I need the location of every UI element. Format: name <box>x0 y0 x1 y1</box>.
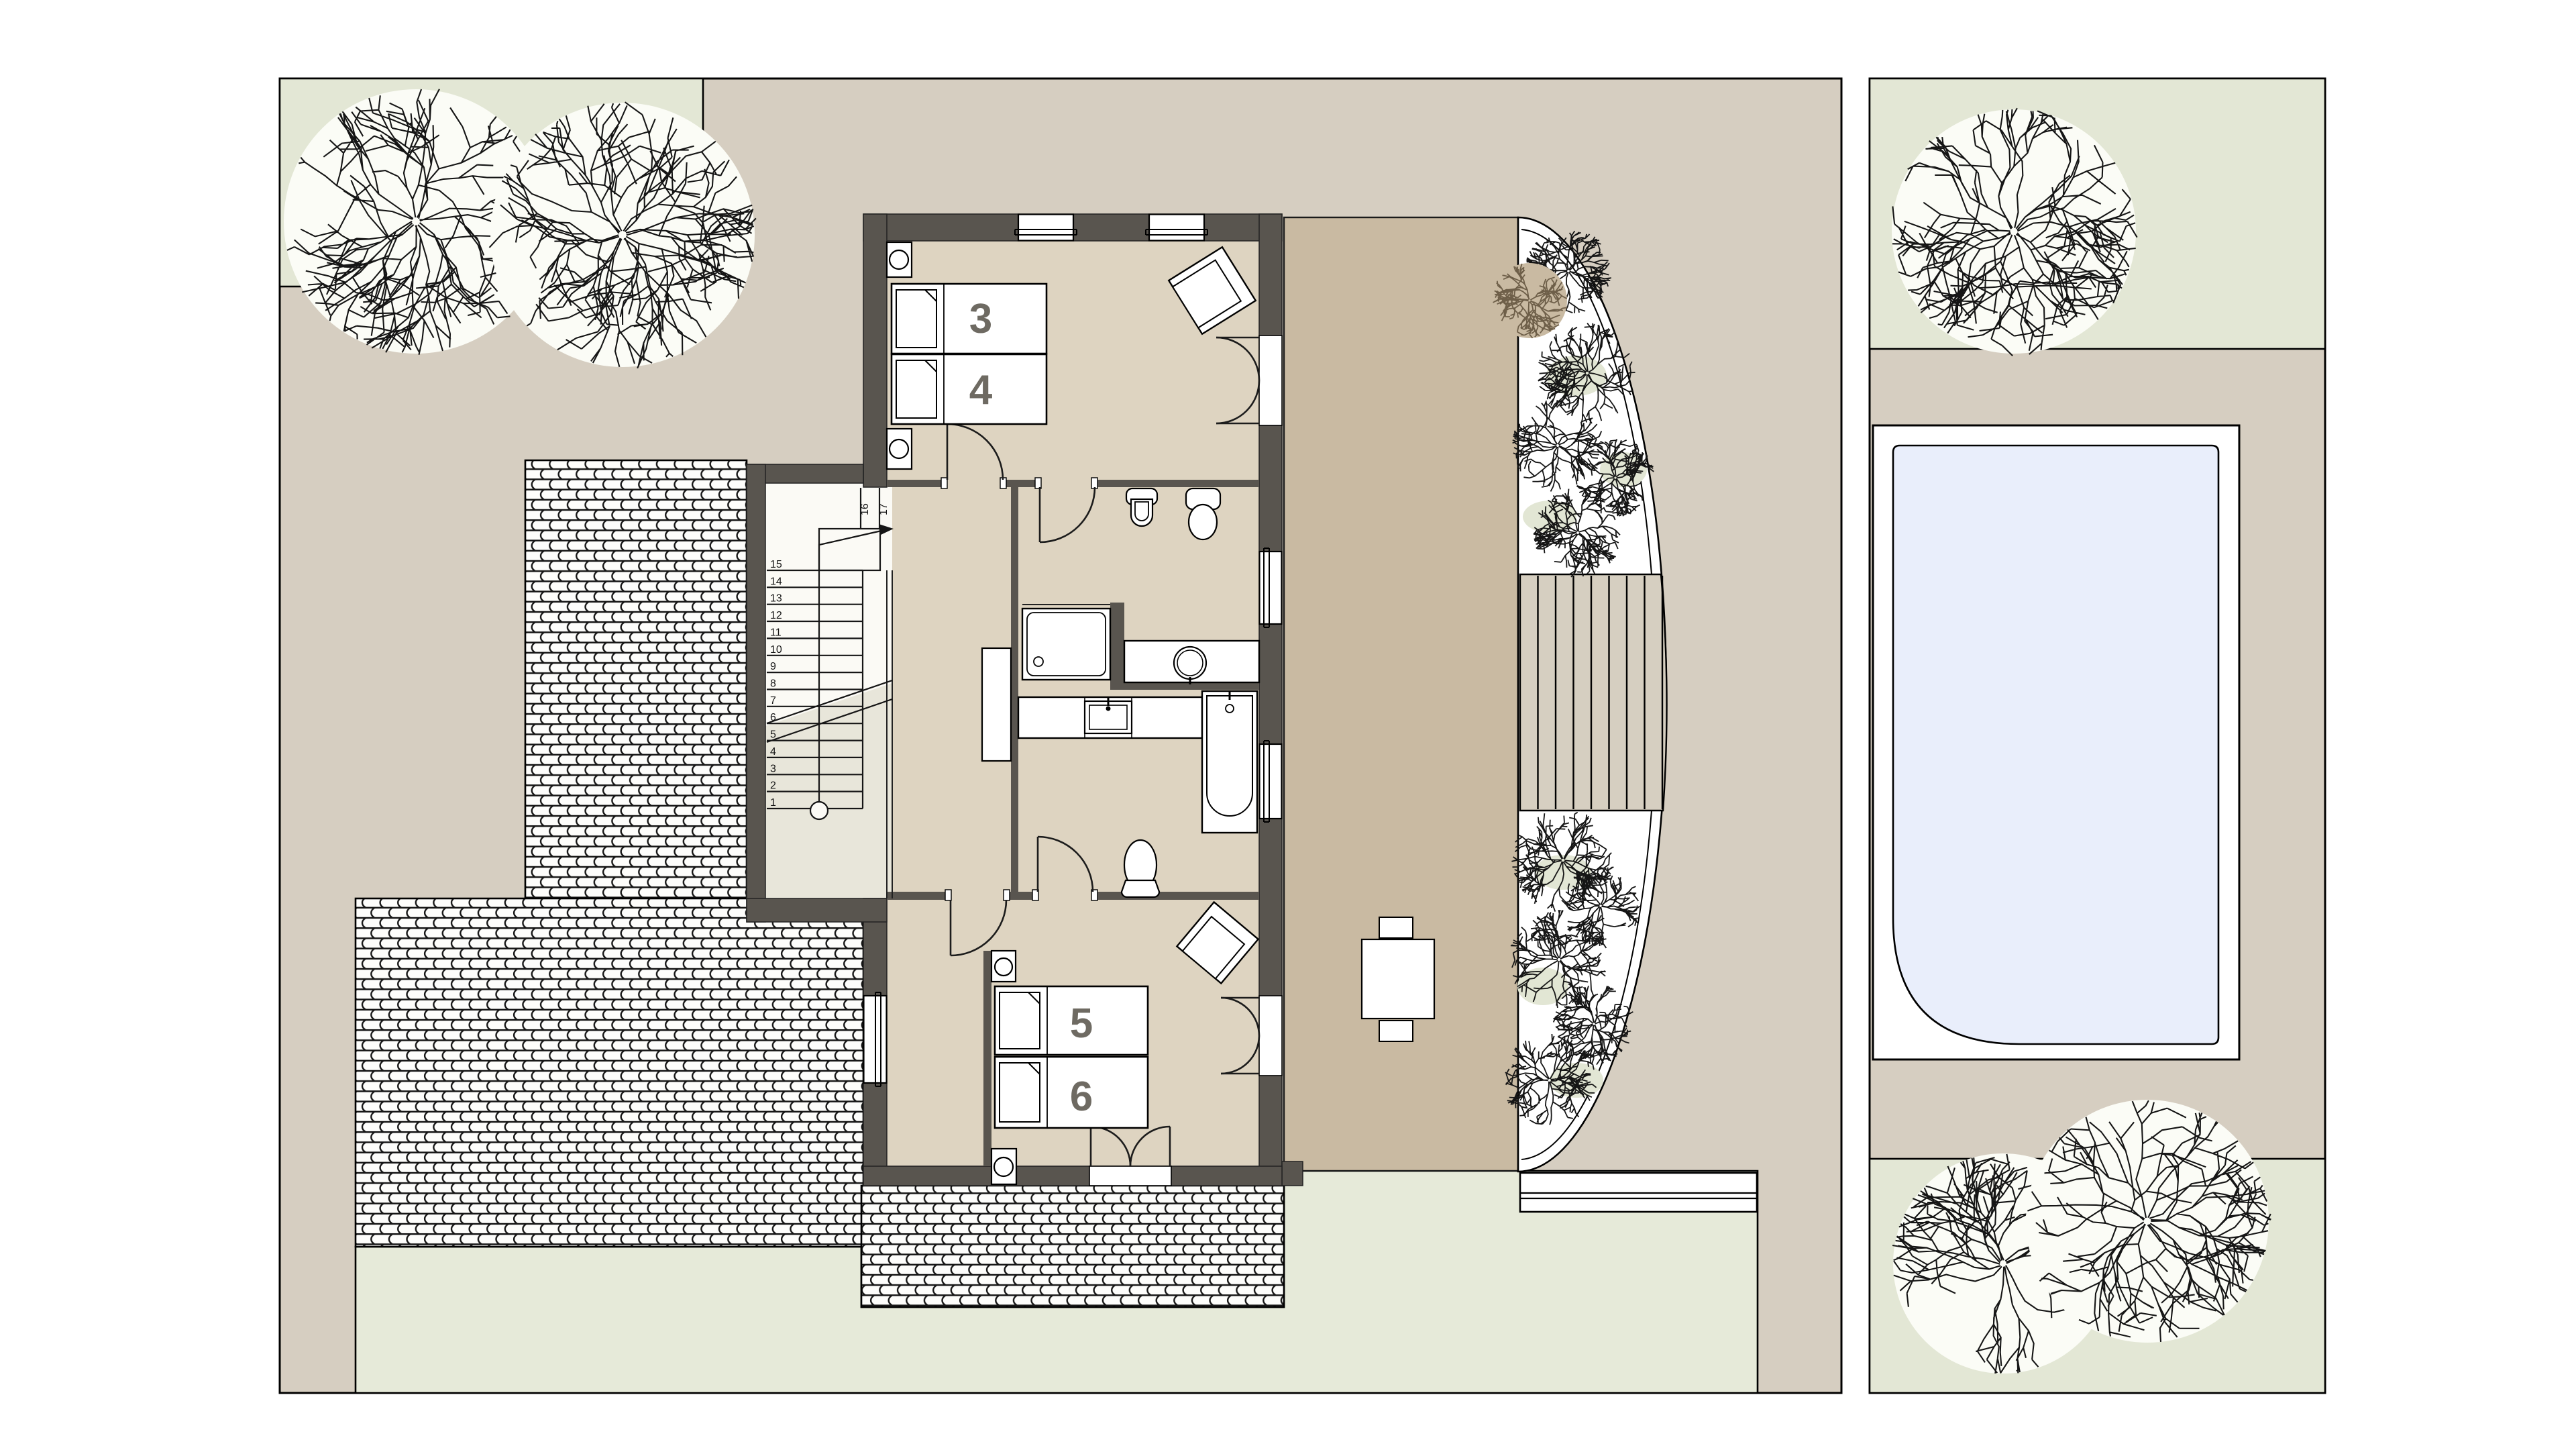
svg-text:9: 9 <box>770 661 776 672</box>
svg-text:6: 6 <box>1070 1074 1093 1120</box>
svg-text:17: 17 <box>878 503 890 515</box>
svg-text:3: 3 <box>770 763 776 774</box>
svg-text:3: 3 <box>969 296 992 342</box>
svg-text:7: 7 <box>770 695 776 707</box>
svg-text:13: 13 <box>770 593 782 605</box>
svg-text:15: 15 <box>770 559 782 570</box>
svg-text:1: 1 <box>770 797 776 809</box>
svg-text:5: 5 <box>770 729 776 741</box>
svg-text:8: 8 <box>770 678 776 690</box>
svg-text:12: 12 <box>770 610 782 621</box>
svg-text:14: 14 <box>770 576 782 587</box>
svg-text:16: 16 <box>859 503 871 515</box>
svg-text:4: 4 <box>770 746 776 758</box>
svg-text:5: 5 <box>1070 1000 1093 1047</box>
svg-text:6: 6 <box>770 712 776 723</box>
svg-text:11: 11 <box>770 627 782 638</box>
svg-text:10: 10 <box>770 644 782 656</box>
svg-text:2: 2 <box>770 780 776 792</box>
svg-text:4: 4 <box>969 367 993 413</box>
